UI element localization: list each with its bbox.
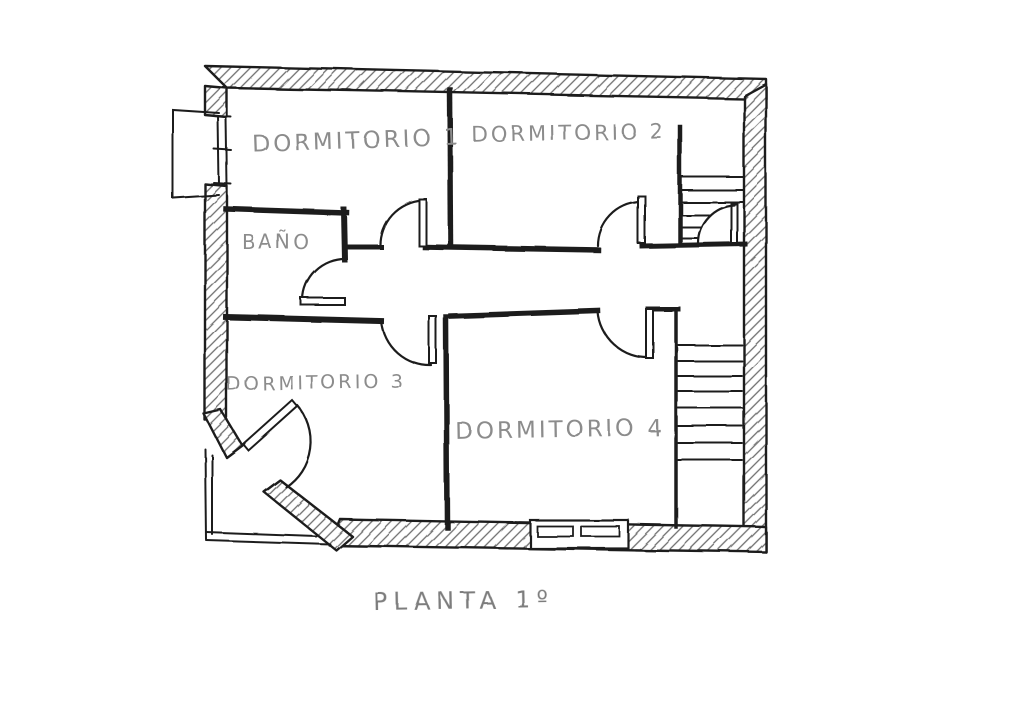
sw-wall-horizontal-inner (206, 532, 316, 536)
door-arc (598, 202, 640, 246)
stairs-lower (676, 309, 742, 527)
wall-left-lower (205, 184, 227, 420)
door-arc (303, 259, 345, 300)
door-arc (380, 200, 422, 246)
window-tick (214, 183, 231, 184)
door-arc (598, 312, 648, 357)
wall-top (205, 66, 766, 99)
door-leaf (429, 316, 436, 363)
wall-bano-right (344, 210, 345, 260)
floor-plan-sketch: DORMITORIO 1 DORMITORIO 2 BAÑO DORMITORI… (0, 0, 1024, 723)
left-wall-window (214, 116, 231, 185)
bottom-wall-window (530, 520, 628, 548)
sketch-page: DORMITORIO 1 DORMITORIO 2 BAÑO DORMITORI… (0, 0, 1024, 723)
door-leaf (301, 298, 345, 305)
window-pane (581, 526, 619, 536)
wall-divider-dorm1-dorm2 (450, 90, 451, 246)
plan-title: PLANTA 1º (374, 585, 555, 616)
window-frame-line (226, 117, 227, 185)
door-leaf (243, 400, 297, 450)
wall-sw-diagonal (264, 480, 352, 550)
stairs-upper (680, 127, 743, 243)
door-dormitorio-3 (381, 316, 436, 365)
room-label-dormitorio-1: DORMITORIO 1 (252, 124, 462, 157)
room-label-bano: BAÑO (242, 230, 312, 254)
wall-bano-top (226, 209, 347, 213)
room-label-dormitorio-4: DORMITORIO 4 (455, 415, 665, 445)
door-leaf (646, 309, 653, 358)
window-tick (214, 116, 231, 117)
door-bano (301, 259, 345, 305)
stair-door-arc (698, 205, 734, 243)
door-arc (286, 405, 311, 487)
window-pane (537, 526, 573, 536)
window-tick (214, 149, 231, 150)
door-leaf (638, 196, 645, 243)
wall-left-diagonal (204, 410, 242, 457)
wall-hall-bottom-a (226, 317, 381, 321)
wall-hall-top-c (642, 244, 745, 246)
sw-wall-vertical-outer (205, 449, 206, 539)
wall-divider-dorm3-dorm4 (446, 317, 447, 527)
sw-wall-horizontal-outer (206, 540, 330, 544)
door-leaf (419, 199, 426, 246)
stair-door-leaf (731, 204, 737, 243)
wall-right (744, 84, 766, 552)
door-dormitorio-4 (598, 309, 653, 358)
room-label-dormitorio-3: DORMITORIO 3 (226, 370, 406, 395)
wall-hall-bottom-b (451, 311, 598, 316)
room-label-dormitorio-2: DORMITORIO 2 (472, 119, 667, 146)
door-dormitorio-1 (380, 199, 426, 246)
door-dormitorio-2 (598, 196, 645, 246)
door-arc (381, 321, 431, 365)
door-entrance (243, 400, 311, 487)
